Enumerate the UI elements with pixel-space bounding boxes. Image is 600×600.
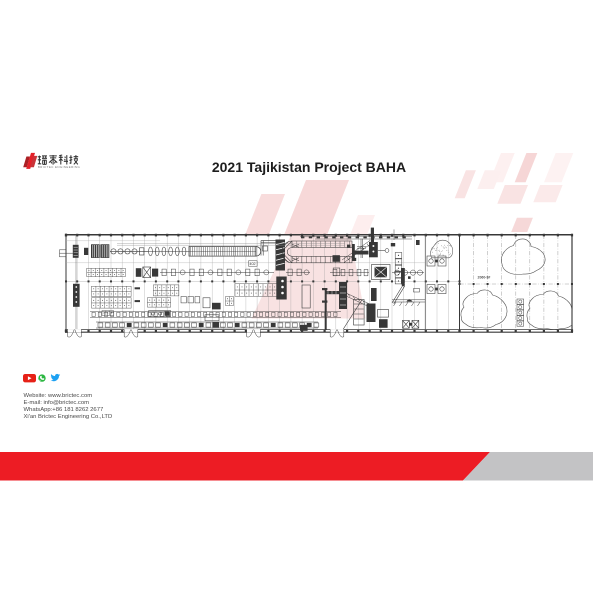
svg-text:402: 402 xyxy=(249,262,255,266)
svg-text:WhatsApp:+86 181 8262 2677: WhatsApp:+86 181 8262 2677 xyxy=(24,407,104,413)
svg-text:2021 Tajikistan Project BAHA: 2021 Tajikistan Project BAHA xyxy=(212,159,406,175)
svg-text:Xi'an Brictec Engineering Co.,: Xi'an Brictec Engineering Co.,LTD xyxy=(24,414,113,420)
svg-text:Website: www.brictec.com: Website: www.brictec.com xyxy=(24,393,93,399)
svg-text:E-mail: info@brictec.com: E-mail: info@brictec.com xyxy=(24,400,90,406)
svg-text:2060·8#: 2060·8# xyxy=(478,275,491,279)
svg-text:BRICTEC ENGINEERING: BRICTEC ENGINEERING xyxy=(38,165,81,169)
